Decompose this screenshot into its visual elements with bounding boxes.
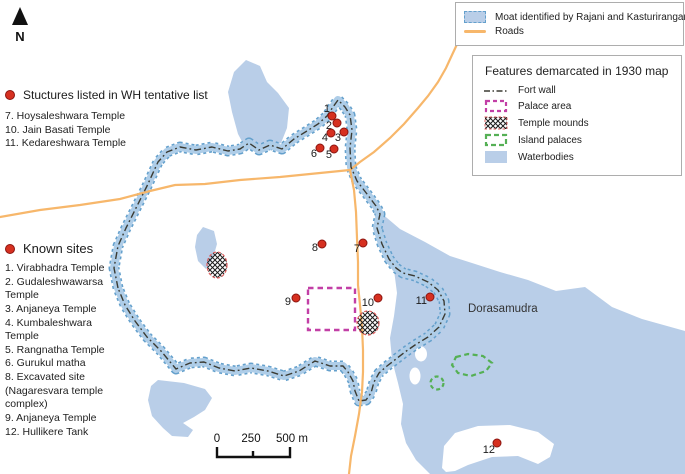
palace-area-swatch-icon bbox=[483, 99, 509, 113]
legend-item-palace-area: Palace area bbox=[483, 99, 671, 113]
legend-moat-roads: Moat identified by Rajani and Kasturiran… bbox=[455, 2, 684, 46]
list-item: 5. Rangnatha Temple bbox=[5, 344, 123, 358]
road-line-icon bbox=[464, 30, 486, 33]
temple-mound bbox=[207, 252, 227, 278]
list-item: 9. Anjaneya Temple bbox=[5, 412, 123, 426]
site-marker-dot bbox=[316, 144, 324, 152]
scale-label-0: 0 bbox=[214, 433, 220, 445]
legend-item-label: Island palaces bbox=[518, 135, 582, 146]
legend-item-roads: Roads bbox=[464, 26, 675, 37]
legend-item-moat: Moat identified by Rajani and Kasturiran… bbox=[464, 11, 675, 23]
north-arrow-icon: N bbox=[12, 7, 28, 44]
known-sites-title-row: Known sites bbox=[5, 241, 123, 256]
site-marker-dot bbox=[327, 129, 335, 137]
lake-label: Dorasamudra bbox=[468, 303, 538, 315]
site-marker-number: 5 bbox=[326, 149, 332, 161]
wh-list-title-row: Stuctures listed in WH tentative list bbox=[5, 88, 265, 102]
wh-tentative-list: Stuctures listed in WH tentative list 7.… bbox=[5, 88, 265, 151]
waterbody-south-pond bbox=[148, 380, 212, 437]
list-item: 11. Kedareshwara Temple bbox=[5, 137, 265, 151]
scale-bar: 0 250 500 m bbox=[214, 433, 308, 457]
island-palaces-swatch-icon bbox=[483, 133, 509, 147]
legend-item-temple-mounds: Temple mounds bbox=[483, 116, 671, 130]
waterbodies-swatch-icon bbox=[483, 150, 509, 164]
site-marker-dot bbox=[340, 128, 348, 136]
legend-item-label: Temple mounds bbox=[518, 118, 589, 129]
lake-island bbox=[415, 347, 427, 362]
legend-item-fort-wall: Fort wall bbox=[483, 85, 671, 96]
legend-title: Features demarcated in 1930 map bbox=[485, 64, 671, 78]
map-figure: Dorasamudra 123456789101112 N 0 250 500 … bbox=[0, 0, 685, 474]
list-item: 12. Hullikere Tank bbox=[5, 426, 123, 440]
scale-label-250: 250 bbox=[241, 433, 260, 445]
red-dot-icon bbox=[5, 90, 15, 100]
scale-label-500m: 500 m bbox=[276, 433, 308, 445]
list-item: 10. Jain Basati Temple bbox=[5, 124, 265, 138]
wh-list-title: Stuctures listed in WH tentative list bbox=[23, 88, 208, 102]
legend-item-label: Palace area bbox=[518, 101, 571, 112]
known-sites-items: 1. Virabhadra Temple 2. Gudaleshwawarsa … bbox=[5, 262, 123, 439]
site-marker-number: 10 bbox=[362, 297, 374, 309]
site-marker-number: 4 bbox=[322, 132, 328, 144]
moat-swatch-icon bbox=[464, 11, 486, 23]
list-item: 4. Kumbaleshwara Temple bbox=[5, 317, 123, 344]
lake-island bbox=[410, 368, 421, 385]
site-marker-number: 11 bbox=[416, 295, 427, 307]
site-marker-number: 8 bbox=[312, 242, 318, 254]
site-marker-number: 3 bbox=[335, 132, 341, 144]
wh-list-items: 7. Hoysaleshwara Temple 10. Jain Basati … bbox=[5, 110, 265, 151]
list-item: 1. Virabhadra Temple bbox=[5, 262, 123, 276]
list-item: 8. Excavated site (Nagaresvara temple co… bbox=[5, 371, 123, 412]
site-marker-dot bbox=[292, 294, 300, 302]
legend-item-label: Roads bbox=[495, 26, 524, 37]
list-item: 3. Anjaneya Temple bbox=[5, 303, 123, 317]
road-west bbox=[0, 170, 350, 217]
legend-item-waterbodies: Waterbodies bbox=[483, 150, 671, 164]
legend-item-label: Fort wall bbox=[518, 85, 556, 96]
site-marker-dot bbox=[374, 294, 382, 302]
site-marker-dot bbox=[359, 239, 367, 247]
list-item: 2. Gudaleshwawarsa Temple bbox=[5, 276, 123, 303]
site-marker-number: 12 bbox=[483, 444, 495, 456]
list-item: 6. Gurukul matha bbox=[5, 357, 123, 371]
palace-area bbox=[308, 288, 355, 330]
legend-1930-features: Features demarcated in 1930 map Fort wal… bbox=[472, 55, 682, 176]
list-item: 7. Hoysaleshwara Temple bbox=[5, 110, 265, 124]
known-sites-list: Known sites 1. Virabhadra Temple 2. Guda… bbox=[5, 241, 123, 439]
temple-mounds-swatch-icon bbox=[483, 116, 509, 130]
site-marker-dot bbox=[426, 293, 434, 301]
red-dot-icon bbox=[5, 244, 15, 254]
known-sites-title: Known sites bbox=[23, 241, 93, 256]
temple-mound bbox=[357, 311, 379, 335]
fort-wall-line-icon bbox=[483, 86, 509, 96]
site-marker-number: 1 bbox=[324, 103, 330, 115]
site-marker-number: 6 bbox=[311, 148, 317, 160]
site-marker-dot bbox=[333, 119, 341, 127]
legend-item-label: Waterbodies bbox=[518, 152, 574, 163]
north-label: N bbox=[15, 29, 24, 44]
site-marker-number: 7 bbox=[354, 243, 360, 255]
site-marker-number: 9 bbox=[285, 296, 291, 308]
legend-item-island-palaces: Island palaces bbox=[483, 133, 671, 147]
road-northeast bbox=[350, 40, 459, 170]
legend-item-label: Moat identified by Rajani and Kasturiran… bbox=[495, 12, 685, 23]
site-marker-dot bbox=[318, 240, 326, 248]
